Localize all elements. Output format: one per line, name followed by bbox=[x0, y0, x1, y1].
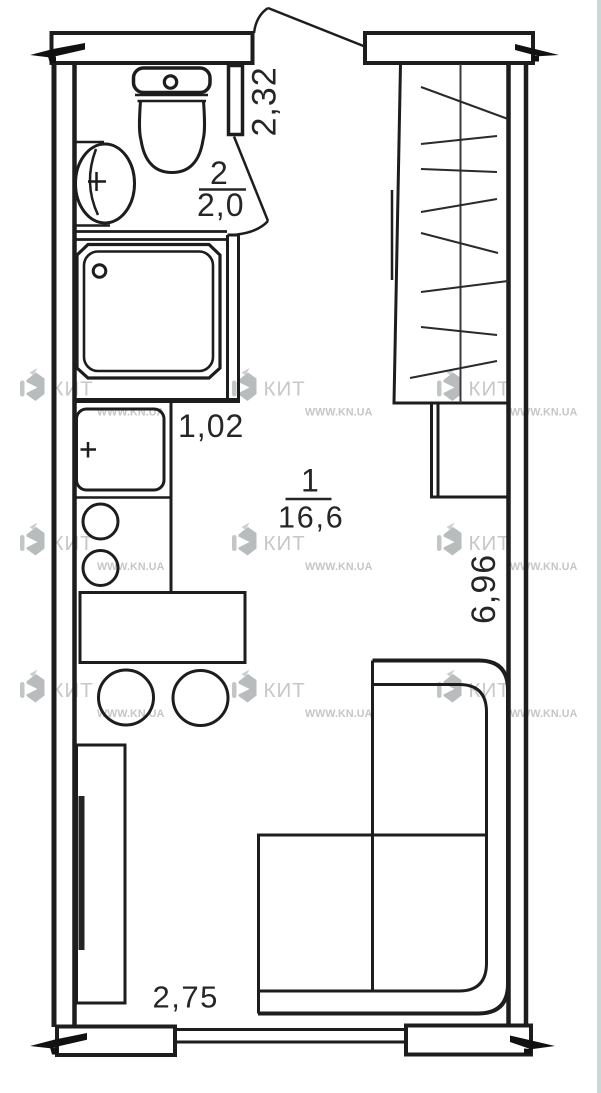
svg-text:16,6: 16,6 bbox=[278, 501, 345, 535]
svg-text:2,75: 2,75 bbox=[153, 980, 219, 1015]
svg-text:2,32: 2,32 bbox=[246, 66, 284, 136]
svg-text:6,96: 6,96 bbox=[465, 554, 503, 624]
svg-text:1,02: 1,02 bbox=[178, 408, 244, 444]
svg-text:КИТ: КИТ bbox=[469, 532, 511, 555]
svg-text:WWW.KN.UA: WWW.KN.UA bbox=[305, 561, 373, 573]
svg-text:2,0: 2,0 bbox=[197, 187, 244, 223]
svg-text:КИТ: КИТ bbox=[264, 378, 306, 401]
svg-text:КИТ: КИТ bbox=[264, 532, 306, 555]
svg-text:КИТ: КИТ bbox=[469, 378, 511, 401]
svg-text:WWW.KN.UA: WWW.KN.UA bbox=[510, 561, 578, 573]
svg-text:WWW.KN.UA: WWW.KN.UA bbox=[510, 708, 578, 720]
svg-text:WWW.KN.UA: WWW.KN.UA bbox=[305, 708, 373, 720]
svg-text:2: 2 bbox=[210, 155, 228, 191]
svg-text:КИТ: КИТ bbox=[469, 679, 511, 702]
svg-text:WWW.KN.UA: WWW.KN.UA bbox=[305, 407, 373, 419]
svg-text:КИТ: КИТ bbox=[264, 679, 306, 702]
svg-text:1: 1 bbox=[301, 463, 319, 499]
svg-text:WWW.KN.UA: WWW.KN.UA bbox=[97, 561, 165, 573]
svg-text:WWW.KN.UA: WWW.KN.UA bbox=[510, 407, 578, 419]
